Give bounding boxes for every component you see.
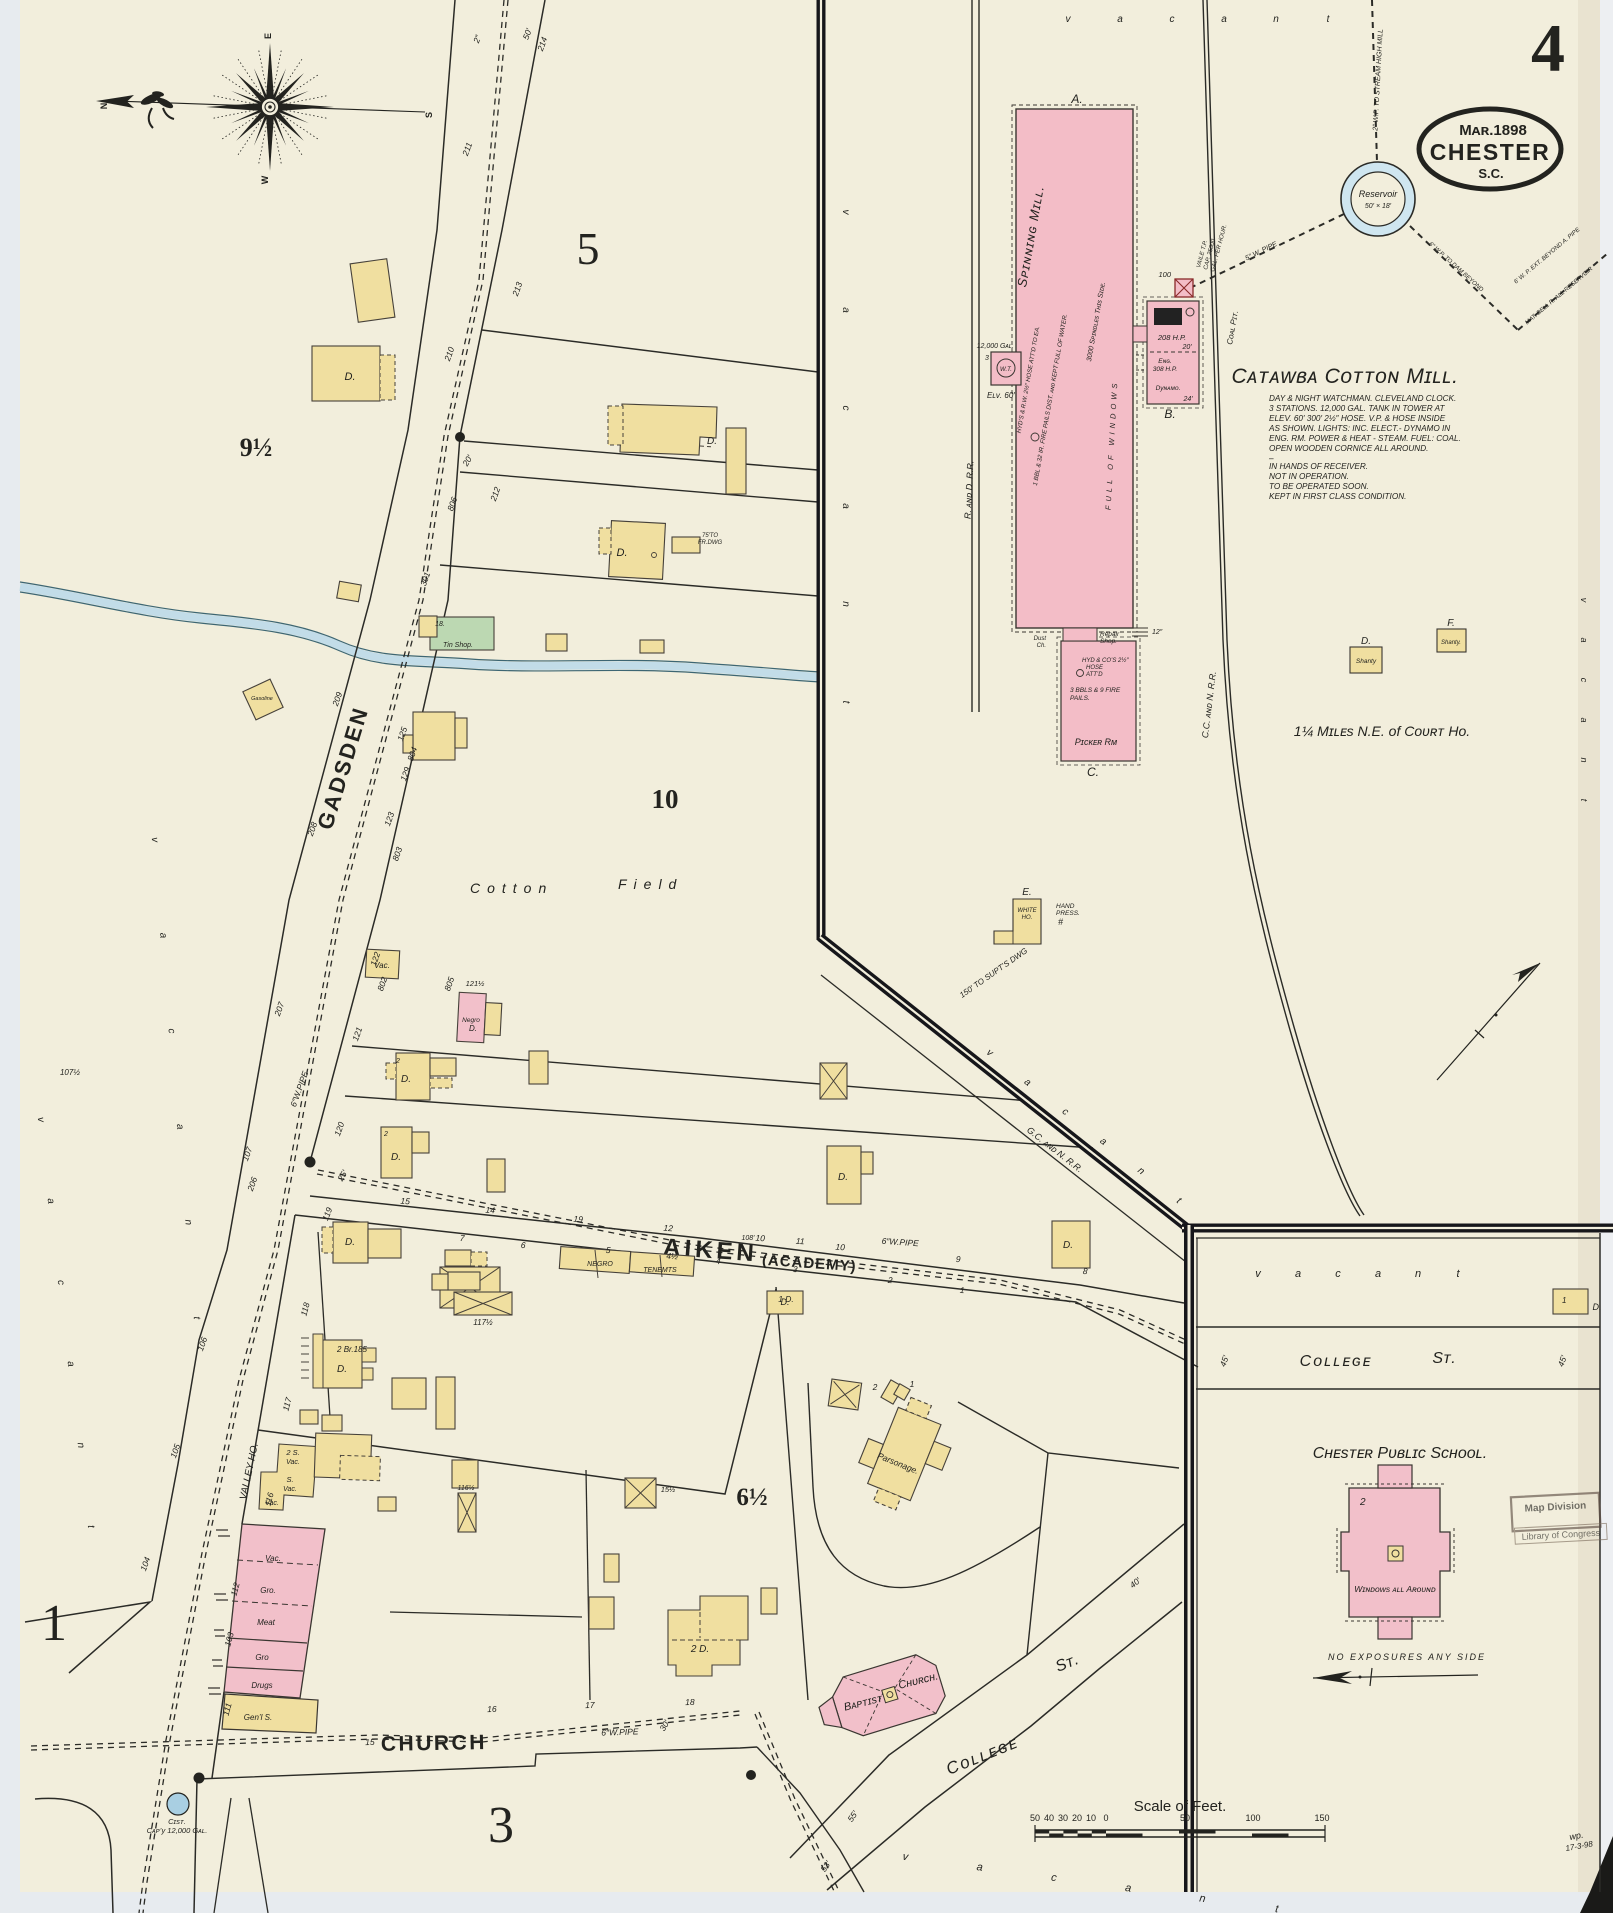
svg-text:308 H.P.: 308 H.P. xyxy=(1153,366,1178,373)
svg-text:Gasoline: Gasoline xyxy=(251,696,273,702)
svg-text:HYD & CO’S 2½″: HYD & CO’S 2½″ xyxy=(1082,657,1129,664)
svg-text:40: 40 xyxy=(1044,1813,1054,1823)
svg-text:Vac.: Vac. xyxy=(286,1459,300,1466)
svg-text:75′TO: 75′TO xyxy=(702,533,718,539)
svg-text:D.: D. xyxy=(345,371,356,383)
svg-text:C.: C. xyxy=(1087,765,1099,779)
svg-text:18.: 18. xyxy=(435,621,445,628)
svg-text:a: a xyxy=(840,307,851,313)
svg-text:A.: A. xyxy=(1070,92,1082,106)
svg-text:1: 1 xyxy=(910,1379,915,1389)
svg-text:24′: 24′ xyxy=(1182,396,1193,403)
svg-text:121½: 121½ xyxy=(466,979,486,988)
svg-text:E.: E. xyxy=(1022,887,1031,898)
svg-text:Gro.: Gro. xyxy=(260,1586,276,1595)
svg-text:100: 100 xyxy=(1158,270,1171,279)
svg-text:c: c xyxy=(165,1028,176,1034)
svg-text:10: 10 xyxy=(835,1242,845,1253)
svg-text:W: W xyxy=(260,175,270,184)
svg-text:N: N xyxy=(99,103,109,110)
svg-text:n: n xyxy=(1579,757,1589,762)
svg-text:Cʜᴇsᴛᴇʀ Pᴜʙʟɪᴄ Sᴄʜᴏᴏʟ.: Cʜᴇsᴛᴇʀ Pᴜʙʟɪᴄ Sᴄʜᴏᴏʟ. xyxy=(1313,1445,1488,1462)
svg-text:2: 2 xyxy=(383,1131,388,1138)
svg-text:2: 2 xyxy=(395,1058,400,1065)
svg-text:Meat: Meat xyxy=(257,1618,276,1627)
svg-text:30: 30 xyxy=(1058,1813,1068,1823)
svg-text:12: 12 xyxy=(663,1223,673,1234)
svg-text:S: S xyxy=(424,112,434,118)
svg-text:50: 50 xyxy=(1180,1813,1190,1823)
svg-text:10: 10 xyxy=(755,1233,765,1244)
svg-text:c: c xyxy=(1170,14,1175,25)
svg-text:Field: Field xyxy=(618,876,683,892)
svg-text:FR.DWG: FR.DWG xyxy=(698,540,723,546)
svg-text:Sᴛ.: Sᴛ. xyxy=(1432,1350,1455,1367)
svg-text:8: 8 xyxy=(1082,1266,1088,1276)
svg-text:D.: D. xyxy=(707,436,717,447)
svg-text:Wɪɴᴅᴏᴡs ᴀʟʟ Aʀᴏᴜɴᴅ: Wɪɴᴅᴏᴡs ᴀʟʟ Aʀᴏᴜɴᴅ xyxy=(1354,1584,1436,1594)
svg-text:1 D.: 1 D. xyxy=(778,1294,794,1304)
svg-text:116½: 116½ xyxy=(458,1484,475,1492)
svg-text:n: n xyxy=(1273,14,1279,25)
svg-text:Dust: Dust xyxy=(1034,636,1047,642)
svg-text:D.: D. xyxy=(401,1074,411,1085)
svg-text:4: 4 xyxy=(1531,10,1565,86)
svg-text:Eʟᴠ. 60′: Eʟᴠ. 60′ xyxy=(987,391,1015,400)
svg-text:KEPT IN FIRST CLASS CONDITION.: KEPT IN FIRST CLASS CONDITION. xyxy=(1269,492,1406,501)
svg-text:PAILS.: PAILS. xyxy=(1070,695,1090,702)
svg-text:Dyɴᴀᴍᴏ.: Dyɴᴀᴍᴏ. xyxy=(1156,385,1181,392)
svg-text:Vac.: Vac. xyxy=(265,1554,281,1563)
svg-text:10: 10 xyxy=(1086,1813,1096,1823)
svg-text:11: 11 xyxy=(795,1236,805,1247)
svg-text:2: 2 xyxy=(1359,1497,1366,1508)
svg-text:S.: S. xyxy=(286,1475,293,1484)
svg-text:a: a xyxy=(840,503,851,509)
svg-text:a: a xyxy=(1295,1268,1301,1280)
svg-text:Gro: Gro xyxy=(255,1653,269,1662)
svg-text:D.: D. xyxy=(1361,636,1371,647)
svg-text:3 STATIONS. 12,000 GAL. TANK I: 3 STATIONS. 12,000 GAL. TANK IN TOWER AT xyxy=(1269,404,1445,413)
svg-text:1: 1 xyxy=(959,1285,965,1295)
svg-text:TO BE OPERATED SOON.: TO BE OPERATED SOON. xyxy=(1269,482,1369,491)
svg-text:E: E xyxy=(263,33,273,39)
svg-text:AS SHOWN. LIGHTS: INC. ELECT.-: AS SHOWN. LIGHTS: INC. ELECT.- DYNAMO IN xyxy=(1268,424,1450,433)
svg-text:20′: 20′ xyxy=(1181,344,1192,351)
svg-text:F.: F. xyxy=(1447,618,1455,629)
svg-text:Shanty.: Shanty. xyxy=(1441,640,1461,646)
svg-text:Mᴀʀ.1898: Mᴀʀ.1898 xyxy=(1459,122,1527,139)
svg-text:12,000 Gᴀʟ.: 12,000 Gᴀʟ. xyxy=(977,343,1014,350)
svg-text:B.: B. xyxy=(1164,407,1175,421)
svg-text:D.: D. xyxy=(1063,1240,1073,1251)
svg-text:D.: D. xyxy=(469,1024,477,1033)
svg-text:NEGRO: NEGRO xyxy=(587,1261,613,1268)
svg-text:Negro: Negro xyxy=(462,1017,480,1024)
svg-text:107½: 107½ xyxy=(60,1068,80,1077)
svg-text:150: 150 xyxy=(1314,1813,1329,1823)
svg-text:ENG. RM. POWER & HEAT - STEAM.: ENG. RM. POWER & HEAT - STEAM. FUEL: COA… xyxy=(1269,434,1461,443)
svg-text:a: a xyxy=(1221,14,1227,25)
svg-text:0: 0 xyxy=(1103,1813,1108,1823)
svg-text:CHURCH: CHURCH xyxy=(381,1731,487,1756)
svg-text:100: 100 xyxy=(1245,1813,1260,1823)
svg-text:10: 10 xyxy=(652,784,679,814)
svg-text:a: a xyxy=(1375,1268,1381,1280)
svg-text:Cᴏʟʟᴇɢᴇ: Cᴏʟʟᴇɢᴇ xyxy=(1300,1353,1373,1370)
svg-text:18: 18 xyxy=(685,1697,695,1707)
svg-text:CHESTER: CHESTER xyxy=(1430,139,1550,165)
svg-text:ELEV. 60′ 300′ 2½″ HOSE. V.P.: ELEV. 60′ 300′ 2½″ HOSE. V.P. & HOSE INS… xyxy=(1269,414,1446,423)
svg-text:17: 17 xyxy=(585,1700,595,1710)
svg-text:6: 6 xyxy=(520,1240,526,1250)
svg-text:v: v xyxy=(1579,598,1589,603)
svg-text:a: a xyxy=(1117,14,1123,25)
svg-text:D.: D. xyxy=(391,1152,401,1163)
svg-text:a: a xyxy=(1579,637,1589,642)
svg-text:IN HANDS OF RECEIVER.: IN HANDS OF RECEIVER. xyxy=(1269,462,1368,471)
svg-text:Gen’l S.: Gen’l S. xyxy=(244,1713,272,1722)
svg-text:4½: 4½ xyxy=(666,1251,678,1262)
svg-text:15½: 15½ xyxy=(661,1485,676,1494)
svg-text:2: 2 xyxy=(872,1382,878,1392)
svg-text:WHITE: WHITE xyxy=(1017,908,1037,914)
svg-text:n: n xyxy=(1415,1268,1421,1280)
svg-text:D.: D. xyxy=(345,1237,355,1248)
svg-text:9: 9 xyxy=(955,1254,961,1264)
svg-text:Shop.: Shop. xyxy=(1100,638,1117,645)
svg-text:4: 4 xyxy=(715,1256,721,1266)
svg-text:Shanty: Shanty xyxy=(1356,658,1377,665)
svg-text:14: 14 xyxy=(485,1205,495,1216)
svg-text:DAY & NIGHT WATCHMAN. CLEVELAN: DAY & NIGHT WATCHMAN. CLEVELAND CLOCK. xyxy=(1269,394,1456,403)
svg-text:NOT IN OPERATION.: NOT IN OPERATION. xyxy=(1269,472,1349,481)
svg-text:12″: 12″ xyxy=(1152,629,1163,636)
svg-text:c: c xyxy=(1579,678,1589,683)
svg-text:1: 1 xyxy=(41,1595,67,1652)
svg-text:Vac.: Vac. xyxy=(265,1500,279,1507)
svg-text:HAND: HAND xyxy=(1056,903,1075,910)
svg-text:1¼ Mɪʟᴇs N.E. ᴏf Cᴏᴜʀᴛ Hᴏ.: 1¼ Mɪʟᴇs N.E. ᴏf Cᴏᴜʀᴛ Hᴏ. xyxy=(1294,723,1470,739)
svg-text:7: 7 xyxy=(459,1233,465,1243)
svg-text:Cotton: Cotton xyxy=(470,880,553,896)
svg-text:19: 19 xyxy=(573,1214,583,1225)
svg-text:16: 16 xyxy=(487,1704,497,1714)
svg-text:Cɪsᴛ.: Cɪsᴛ. xyxy=(168,1817,186,1826)
svg-text:c: c xyxy=(1335,1268,1341,1280)
svg-text:20: 20 xyxy=(1072,1813,1082,1823)
svg-text:Repair: Repair xyxy=(1100,631,1120,638)
svg-text:6½: 6½ xyxy=(736,1484,767,1511)
svg-text:D.: D. xyxy=(1593,1302,1602,1312)
svg-text:W.T.: W.T. xyxy=(1000,367,1012,373)
svg-text:D.: D. xyxy=(337,1364,347,1375)
svg-text:6″W.PIPE: 6″W.PIPE xyxy=(601,1726,639,1737)
svg-text:208 H.P.: 208 H.P. xyxy=(1157,333,1186,342)
svg-text:NO EXPOSURES ANY SIDE: NO EXPOSURES ANY SIDE xyxy=(1328,1652,1486,1662)
svg-text:50′ × 18′: 50′ × 18′ xyxy=(1365,203,1392,210)
svg-text:2 D.: 2 D. xyxy=(690,1644,709,1655)
svg-text:OPEN WOODEN CORNICE ALL AROUND: OPEN WOODEN CORNICE ALL AROUND. xyxy=(1269,444,1428,453)
svg-text:HO.: HO. xyxy=(1022,915,1033,921)
svg-text:3: 3 xyxy=(792,1264,798,1274)
svg-text:2 S.: 2 S. xyxy=(285,1448,299,1457)
svg-text:ATT’D: ATT’D xyxy=(1085,672,1103,678)
svg-text:108′: 108′ xyxy=(742,1235,756,1242)
svg-text:c: c xyxy=(840,406,851,411)
svg-text:Drugs: Drugs xyxy=(251,1681,272,1690)
svg-text:5: 5 xyxy=(577,223,600,274)
svg-text:117½: 117½ xyxy=(473,1318,493,1327)
svg-text:n: n xyxy=(840,601,851,607)
svg-text:15: 15 xyxy=(400,1196,410,1207)
svg-text:PRESS.: PRESS. xyxy=(1056,910,1080,917)
svg-text:2: 2 xyxy=(887,1275,894,1285)
svg-text:S.C.: S.C. xyxy=(1478,166,1503,181)
svg-text:Cᴀᴘ’y 12,000 Gᴀʟ.: Cᴀᴘ’y 12,000 Gᴀʟ. xyxy=(147,1826,208,1835)
svg-text:1: 1 xyxy=(1562,1296,1566,1305)
svg-text:Vac.: Vac. xyxy=(374,961,390,970)
svg-text:3: 3 xyxy=(488,1797,514,1854)
svg-text:Eɴɢ.: Eɴɢ. xyxy=(1158,358,1172,365)
svg-text:Ch.: Ch. xyxy=(1037,643,1046,649)
svg-text:TENEMTS: TENEMTS xyxy=(643,1267,677,1274)
svg-text:2 Br.185: 2 Br.185 xyxy=(336,1345,367,1354)
svg-text:Reservoir: Reservoir xyxy=(1359,189,1399,199)
svg-text:5: 5 xyxy=(605,1245,611,1255)
svg-text:Vac.: Vac. xyxy=(283,1486,297,1493)
svg-text:Pɪᴄᴋᴇʀ Rᴍ: Pɪᴄᴋᴇʀ Rᴍ xyxy=(1075,737,1117,747)
svg-text:D.: D. xyxy=(838,1172,848,1183)
svg-text:50: 50 xyxy=(1030,1813,1040,1823)
svg-text:Tin Shop.: Tin Shop. xyxy=(443,642,473,649)
svg-text:3: 3 xyxy=(985,355,989,362)
svg-text:Cᴀᴛᴀᴡʙᴀ Cᴏᴛᴛᴏɴ Mɪʟʟ.: Cᴀᴛᴀᴡʙᴀ Cᴏᴛᴛᴏɴ Mɪʟʟ. xyxy=(1232,365,1459,388)
svg-text:HOSE: HOSE xyxy=(1086,665,1104,671)
svg-text:D.: D. xyxy=(617,547,628,559)
svg-text:15: 15 xyxy=(365,1737,375,1747)
svg-text:a: a xyxy=(1579,717,1589,722)
svg-text:3 BBLS & 9 FIRE: 3 BBLS & 9 FIRE xyxy=(1070,687,1121,694)
svg-text:9½: 9½ xyxy=(240,433,273,462)
